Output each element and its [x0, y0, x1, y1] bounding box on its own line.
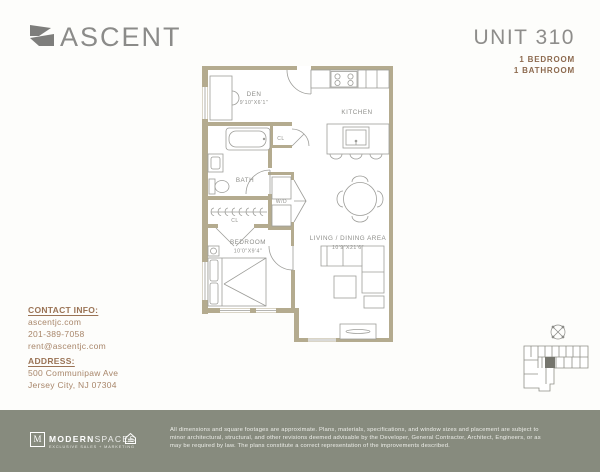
- building-footprint: [524, 346, 588, 391]
- address-heading: ADDRESS:: [28, 355, 118, 367]
- address-block: ADDRESS: 500 Communipaw Ave Jersey City,…: [28, 355, 118, 391]
- address-line1: 500 Communipaw Ave: [28, 367, 118, 379]
- closet-label: CL: [277, 136, 284, 142]
- ascent-logo: [29, 24, 55, 52]
- pillow: [210, 260, 218, 281]
- dryer: [272, 205, 291, 226]
- footer-bar: M MODERNSPACES EXCLUSIVE SALES + MARKETI…: [0, 410, 600, 472]
- den-desk: [210, 76, 232, 120]
- unit-highlight: [545, 357, 555, 368]
- ascent-logo-icon: [29, 24, 55, 52]
- unit-info: UNIT 310 1 BEDROOM 1 BATHROOM: [474, 26, 576, 76]
- address-line2: Jersey City, NJ 07304: [28, 379, 118, 391]
- equal-housing-icon: [124, 432, 137, 445]
- floorplan-drawing: DEN 9'10"X6'1" KITCHEN CL BATH W/D CL BE…: [190, 60, 400, 352]
- contact-heading: CONTACT INFO:: [28, 304, 106, 316]
- modernspaces-bold: MODERN: [49, 434, 95, 444]
- hall-closet-label: CL: [231, 218, 238, 224]
- media-console: [340, 324, 376, 339]
- contact-email: rent@ascentjc.com: [28, 340, 106, 352]
- key-plan: [512, 312, 598, 398]
- unit-title: UNIT 310: [474, 26, 576, 50]
- side-table: [364, 296, 384, 308]
- living-dims: 10'9"X21'6": [332, 245, 364, 251]
- den-dims: 9'10"X6'1": [240, 100, 269, 106]
- toilet-bowl: [215, 181, 229, 193]
- floorplan-sheet: ASCENT UNIT 310 1 BEDROOM 1 BATHROOM: [0, 0, 600, 472]
- brand-name: ASCENT: [60, 22, 182, 53]
- kitchen-label: KITCHEN: [341, 109, 372, 116]
- modernspaces-monogram: M: [30, 432, 45, 447]
- compass-icon: [551, 325, 565, 339]
- bedroom-label: BEDROOM: [230, 239, 266, 246]
- unit-bedroom: 1 BEDROOM: [474, 54, 576, 65]
- bath-label: BATH: [236, 177, 254, 184]
- modernspaces-tagline: EXCLUSIVE SALES + MARKETING: [49, 445, 135, 449]
- legal-disclaimer: All dimensions and square footages are a…: [170, 427, 548, 450]
- bedroom-dims: 10'0"X9'4": [234, 249, 263, 255]
- pillow: [210, 283, 218, 304]
- contact-block: CONTACT INFO: ascentjc.com 201-389-7058 …: [28, 304, 106, 352]
- nightstand: [208, 246, 219, 256]
- coffee-table: [334, 276, 356, 298]
- contact-phone: 201-389-7058: [28, 328, 106, 340]
- dining-table: [344, 183, 377, 216]
- wd-label: W/D: [276, 199, 287, 205]
- stove: [331, 72, 357, 88]
- contact-website: ascentjc.com: [28, 316, 106, 328]
- washer: [272, 177, 291, 199]
- den-label: DEN: [247, 91, 262, 98]
- living-label: LIVING / DINING AREA: [310, 235, 387, 242]
- toilet: [209, 179, 215, 194]
- unit-bathroom: 1 BATHROOM: [474, 65, 576, 76]
